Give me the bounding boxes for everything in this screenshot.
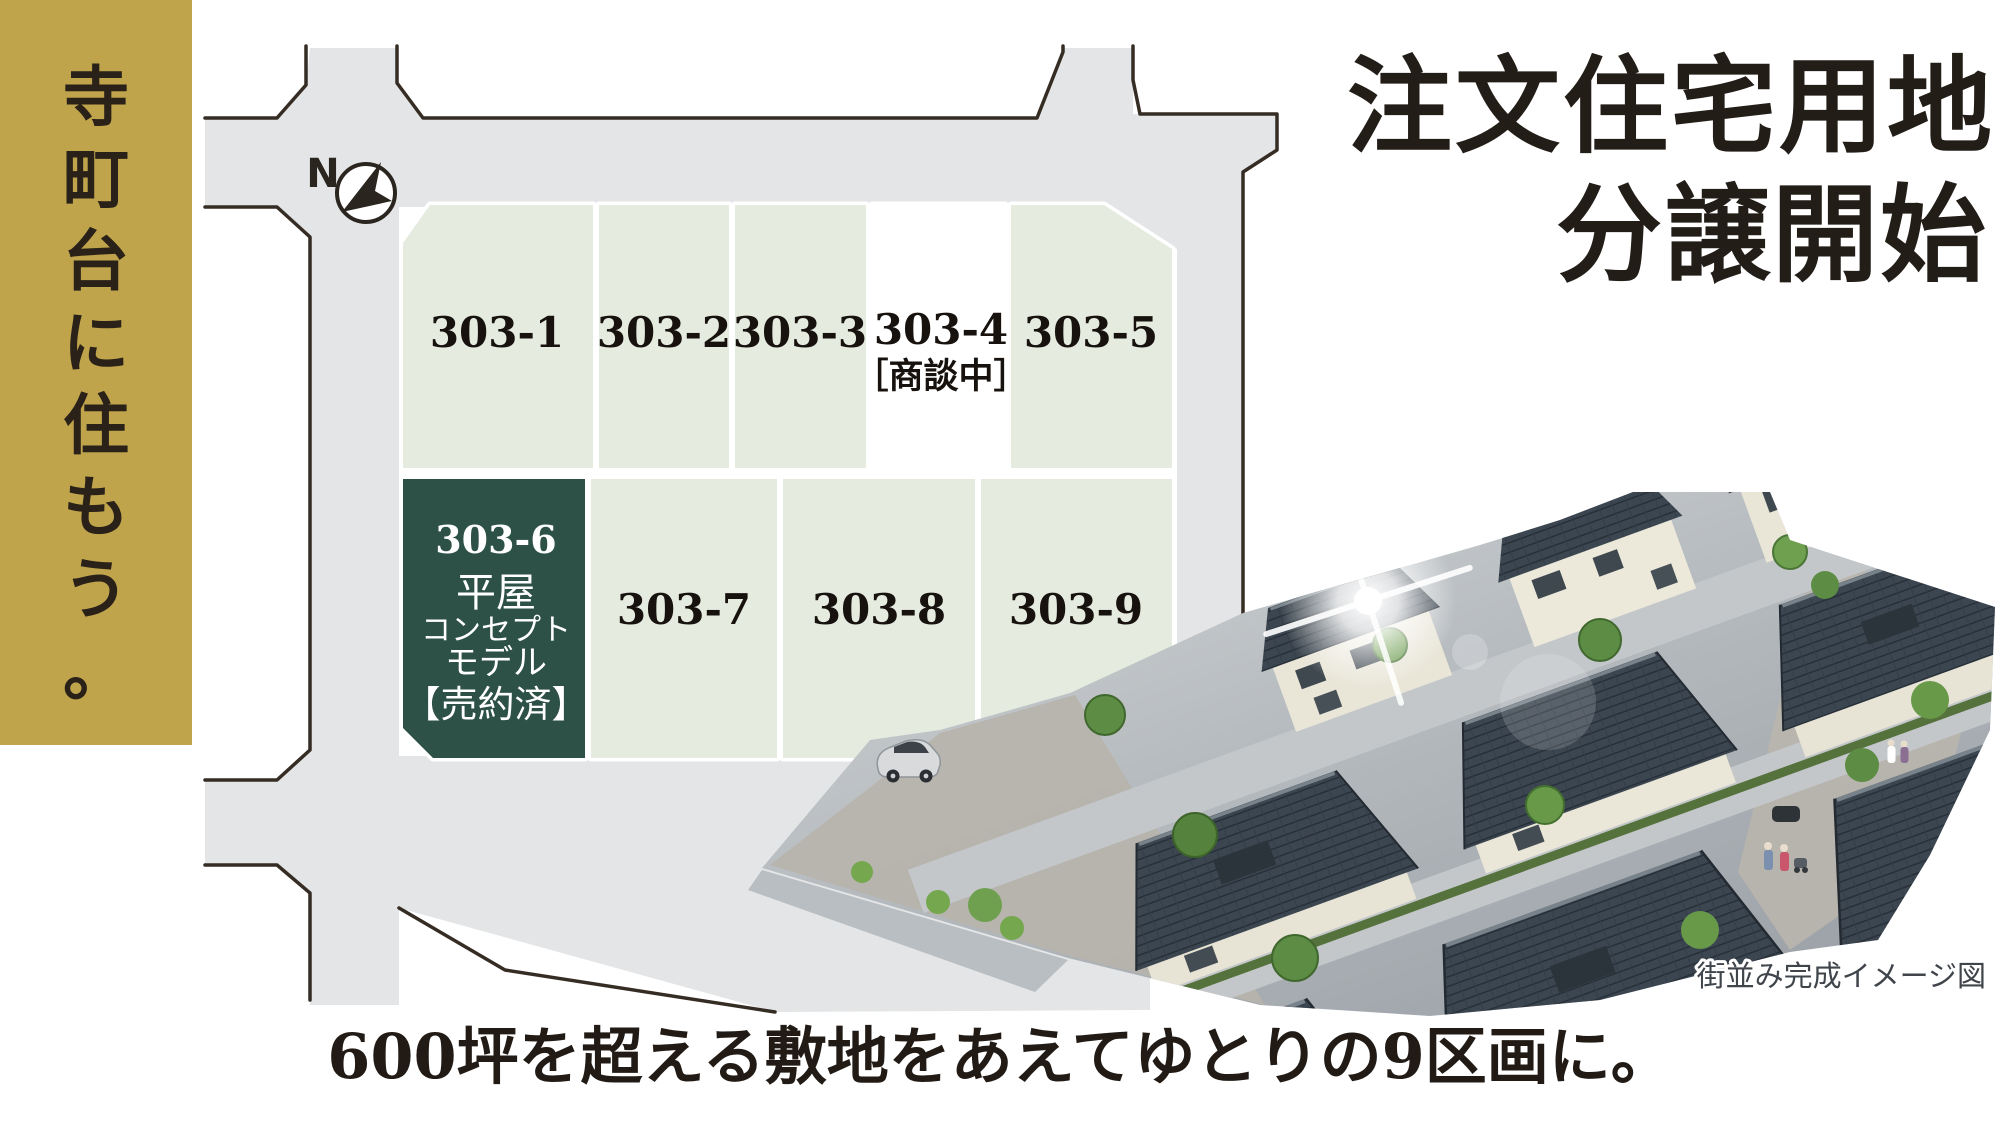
vertical-banner: 寺町台に住もう。 xyxy=(0,0,192,745)
road-west-lower xyxy=(205,780,277,865)
compass-label: N xyxy=(306,151,339,197)
parked-car xyxy=(1772,806,1800,822)
lot-label-303-3: 303-3 xyxy=(733,308,867,357)
road-west-upper xyxy=(205,118,277,207)
real-estate-flyer: N 303-1 303-2 303-3 303-4 ［商談中］ 303-5 30… xyxy=(0,0,2000,1125)
lot-label-303-4: 303-4 xyxy=(874,305,1008,354)
lot-label-303-1: 303-1 xyxy=(430,308,564,357)
title-line2: 分譲開始 xyxy=(1556,172,1988,297)
road-stub-top-left xyxy=(277,48,423,118)
rendering-caption: 街並み完成イメージ図 xyxy=(1697,959,1986,993)
lot-label-303-8: 303-8 xyxy=(812,585,946,634)
lot-label-303-9: 303-9 xyxy=(1009,585,1143,634)
lot-label-303-2: 303-2 xyxy=(597,308,731,357)
lot-label-303-5: 303-5 xyxy=(1024,308,1158,357)
lot-303-6-line4: 【売約済】 xyxy=(404,683,589,726)
lot-status-303-4: ［商談中］ xyxy=(853,356,1028,397)
lot-label-303-7: 303-7 xyxy=(617,585,751,634)
lot-303-6-line1: 平屋 xyxy=(456,570,536,616)
title-line1: 注文住宅用地 xyxy=(1347,44,1995,168)
lot-label-303-6: 303-6 xyxy=(435,517,557,562)
road-vertical-left xyxy=(277,207,399,1005)
main-title: 注文住宅用地 分譲開始 xyxy=(1347,44,1995,297)
lot-303-6-line3: モデル xyxy=(445,643,547,683)
bottom-headline: 600坪を超える敷地をあえてゆとりの9区画に。 xyxy=(327,1020,1673,1093)
